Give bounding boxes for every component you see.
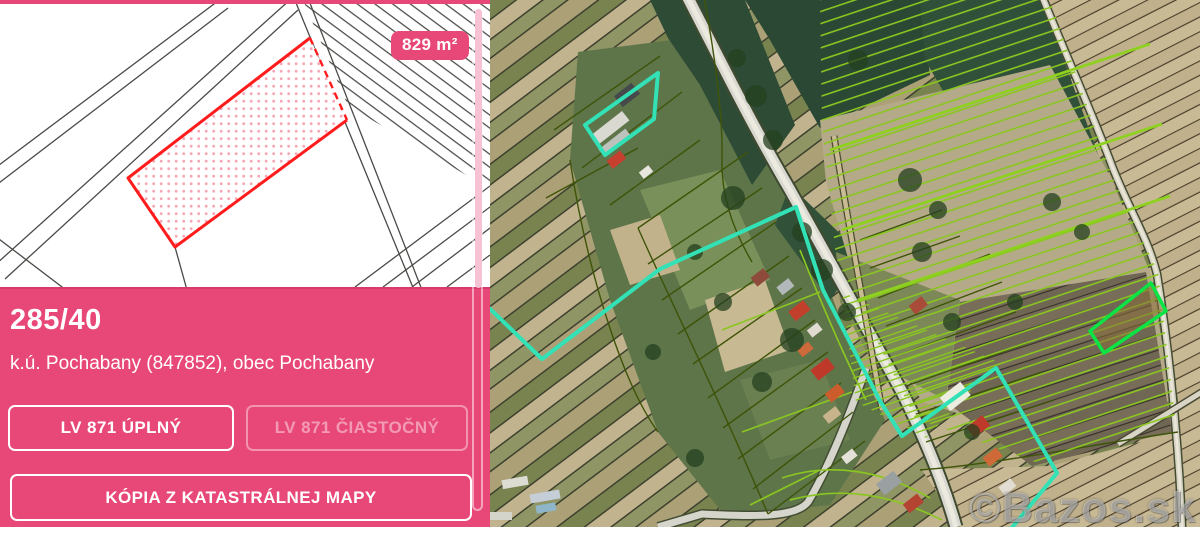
aerial-map[interactable]: ©Bazos.sk [490, 0, 1200, 527]
scrollbar-thumb[interactable] [475, 9, 482, 288]
parcel-location: k.ú. Pochabany (847852), obec Pochabany [10, 353, 374, 375]
top-accent-bar [0, 0, 490, 4]
aerial-map-canvas [490, 0, 1200, 527]
parcel-info-panel: 285/40 k.ú. Pochabany (847852), obec Poc… [0, 287, 490, 527]
cadastral-map-copy-button[interactable]: KÓPIA Z KATASTRÁLNEJ MAPY [10, 474, 472, 521]
cadastral-sketch-map[interactable]: 829 m² [0, 4, 490, 287]
parcel-sidebar: 829 m² 285/40 k.ú. Pochabany (847852), o… [0, 0, 490, 527]
lv-full-button[interactable]: LV 871 ÚPLNÝ [8, 405, 234, 451]
lv-partial-button[interactable]: LV 871 ČIASTOČNÝ [246, 405, 468, 451]
parcel-title: 285/40 [10, 304, 102, 337]
area-badge: 829 m² [391, 31, 469, 60]
